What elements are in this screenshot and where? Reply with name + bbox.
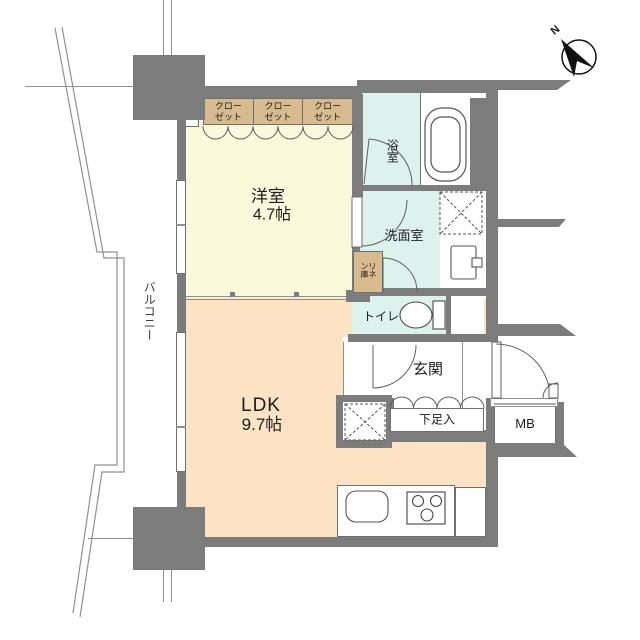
exterior-line [163,0,164,55]
pillar-top [133,55,205,120]
north-wall [196,86,362,98]
meter-box-label: MB [515,417,535,431]
partition-tick [230,292,235,297]
compass-icon [561,39,596,77]
east-wall-upper [486,80,498,228]
shoe-cabinet-label: 下足入 [419,414,455,427]
kitchen-side-storage [455,487,486,537]
ldk-size: 9.7帖 [242,416,283,434]
partition-line [186,299,346,300]
floor-plan: クロー ゼット クロー ゼット クロー ゼット [0,0,640,640]
closet-row: クロー ゼット クロー ゼット クロー ゼット [203,98,353,125]
fridge-bottom-wall [336,440,392,448]
east-wall-mid [486,228,498,342]
west-wall-3 [177,472,186,510]
western-room-label: 洋室 [251,188,285,206]
west-wall-1 [177,118,186,180]
bathroom-label: 浴室 [386,139,399,163]
closet-2-label: クロー [265,101,292,112]
closet-3: クロー ゼット [302,99,352,124]
fridge-top-wall [336,395,392,402]
entrance-door [492,342,558,398]
exterior-line [163,570,164,602]
toilet-label: トイレ [363,311,399,324]
balcony-label: バルコニー [143,281,156,341]
mb-right-wall [556,402,564,446]
tub-side-wall [470,98,486,189]
linen-closet: リネン庫 [353,251,383,293]
exterior-line [171,0,172,55]
entrance-threshold [490,398,558,407]
bath-washroom-wall [358,185,486,191]
toilet-side-storage [451,296,484,334]
fridge-label: 冷 [360,416,371,428]
partition-line [186,296,346,297]
balcony-outline [55,27,124,617]
closet-1: クロー ゼット [204,99,253,124]
bedroom-window [176,180,186,274]
closet-3-label: クロー [314,101,341,112]
linen-closet-label: リネン庫 [360,262,376,282]
closet-1-label: クロー [215,101,242,112]
washer-label: 洗 [455,207,467,220]
closet-2: クロー ゼット [253,99,303,124]
exterior-line [88,538,133,539]
ldk-window-mullion [176,426,186,428]
western-room-size: 4.7帖 [253,208,291,225]
toilet-bottom-wall [348,334,486,342]
entrance-label: 玄関 [413,362,443,378]
partition-tick [294,292,299,297]
kitchen-counter [337,485,455,537]
hall-boundary-line [343,342,344,395]
north-wall-bath [357,80,487,93]
exterior-line [171,570,172,602]
ldk-window [176,332,186,472]
bedroom-window-mullion [176,224,186,226]
bedroom-east-wall [352,94,363,197]
bathtub-area-floor [420,93,471,187]
south-wall [177,537,498,547]
toilet-storage-divider [446,296,451,334]
east-wall-lower [486,440,498,547]
ldk-label: LDK [241,396,281,416]
west-wall-2 [177,274,186,332]
washroom-label: 洗面室 [384,229,423,243]
exterior-line [25,86,133,87]
compass-north-label: N [549,24,563,38]
